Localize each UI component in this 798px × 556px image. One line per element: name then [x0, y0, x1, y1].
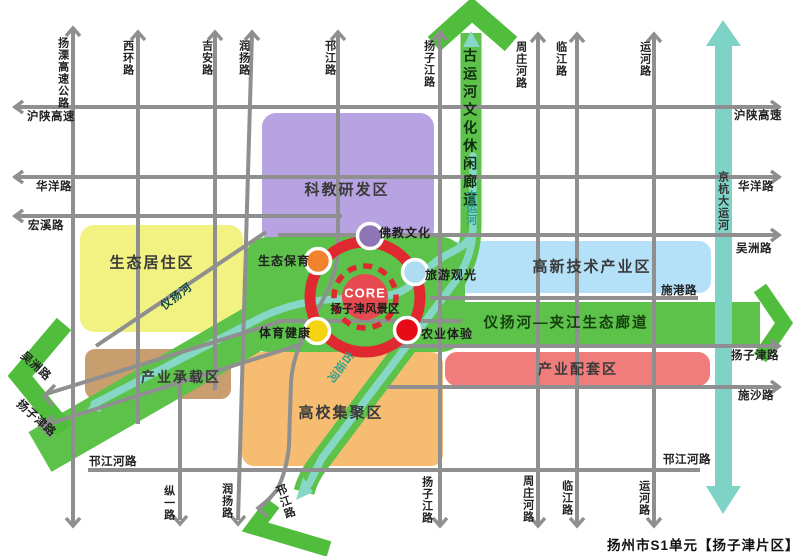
road-label-yangzijiang-bottom: 扬子江路	[420, 476, 433, 524]
road-label-zongyi: 纵一路	[162, 485, 175, 521]
node-label-fojiao: 佛教文化	[379, 227, 431, 241]
zone-label-gaoxin: 高新技术产业区	[532, 258, 651, 275]
planning-map: 扬溧高速公路 西环路 吉安路 润扬路 邗江路 扬子江路 周庄河路 临江路 运河路…	[0, 0, 798, 556]
zone-label-chengzai: 产业承载区	[141, 369, 221, 385]
road-label-runyang-top: 润扬路	[237, 40, 250, 76]
road-label-hushan-right: 沪陕高速	[734, 110, 782, 123]
road-label-yunhe-top: 运河路	[638, 41, 651, 77]
node-label-baoyu: 生态保育	[258, 255, 310, 269]
grand-canal-south-arrow	[706, 486, 741, 514]
node-label-tiyu: 体育健康	[259, 327, 311, 341]
dot-nongye	[395, 318, 420, 343]
road-label-shisha: 施沙路	[738, 390, 774, 403]
road-label-hanjianghe-left: 邗江河路	[89, 456, 137, 469]
road-label-runyang-bottom: 润扬路	[220, 483, 233, 519]
road-label-zhouzhuanghe-bottom: 周庄河路	[521, 475, 534, 523]
core-label: CORE	[344, 287, 386, 302]
map-graphics	[0, 0, 798, 556]
road-label-linjiang-bottom: 临江路	[560, 480, 573, 516]
zone-label-juzhu: 生态居住区	[109, 254, 194, 271]
zone-juzhu-shape	[80, 225, 243, 332]
road-label-yangzijin-east: 扬子津路	[731, 350, 779, 363]
eco-corridor-label: 仪扬河—夹江生态廊道	[484, 316, 649, 333]
guyunhe-river-label-north: 古运河	[464, 190, 477, 226]
core-name-label: 扬子津风景区	[331, 303, 400, 316]
dot-lvyou	[403, 260, 428, 285]
grand-canal-band	[715, 42, 732, 490]
zone-label-gaoxiao: 高校集聚区	[298, 404, 383, 421]
road-label-huayang-left: 华洋路	[36, 181, 72, 194]
road-label-huayang-right: 华洋路	[738, 181, 774, 194]
road-label-hanjiang-top: 邗江路	[323, 40, 336, 76]
zone-label-peitao: 产业配套区	[538, 361, 618, 377]
node-label-lvyou: 旅游观光	[425, 269, 477, 283]
road-label-wuzhou-east: 吴洲路	[736, 243, 772, 256]
grand-canal-north-arrow	[706, 20, 741, 46]
road-label-yunhe-bottom: 运河路	[637, 480, 650, 516]
node-label-nongye: 农业体验	[421, 328, 473, 342]
grand-canal-label: 京杭大运河	[716, 171, 729, 231]
road-label-hushan-left: 沪陕高速	[27, 111, 75, 124]
guyunhe-corridor-label: 古运河文化休闲廊道	[462, 48, 478, 210]
map-caption: 扬州市S1单元【扬子津片区】控制	[607, 538, 798, 554]
road-label-linjiang-top: 临江路	[554, 41, 567, 77]
road-label-yangli: 扬溧高速公路	[56, 37, 69, 109]
road-label-hanjianghe-right: 邗江河路	[663, 454, 711, 467]
zone-label-keyan: 科教研发区	[304, 181, 389, 198]
road-label-hongxi: 宏溪路	[28, 220, 64, 233]
grand-canal-shapes	[706, 20, 741, 514]
road-label-shigang: 施港路	[661, 285, 697, 298]
road-label-jian: 吉安路	[200, 40, 213, 76]
road-label-xihuan: 西环路	[121, 40, 134, 76]
road-label-yangzijiang-top: 扬子江路	[422, 40, 435, 88]
road-label-zhouzhuanghe-top: 周庄河路	[514, 41, 527, 89]
